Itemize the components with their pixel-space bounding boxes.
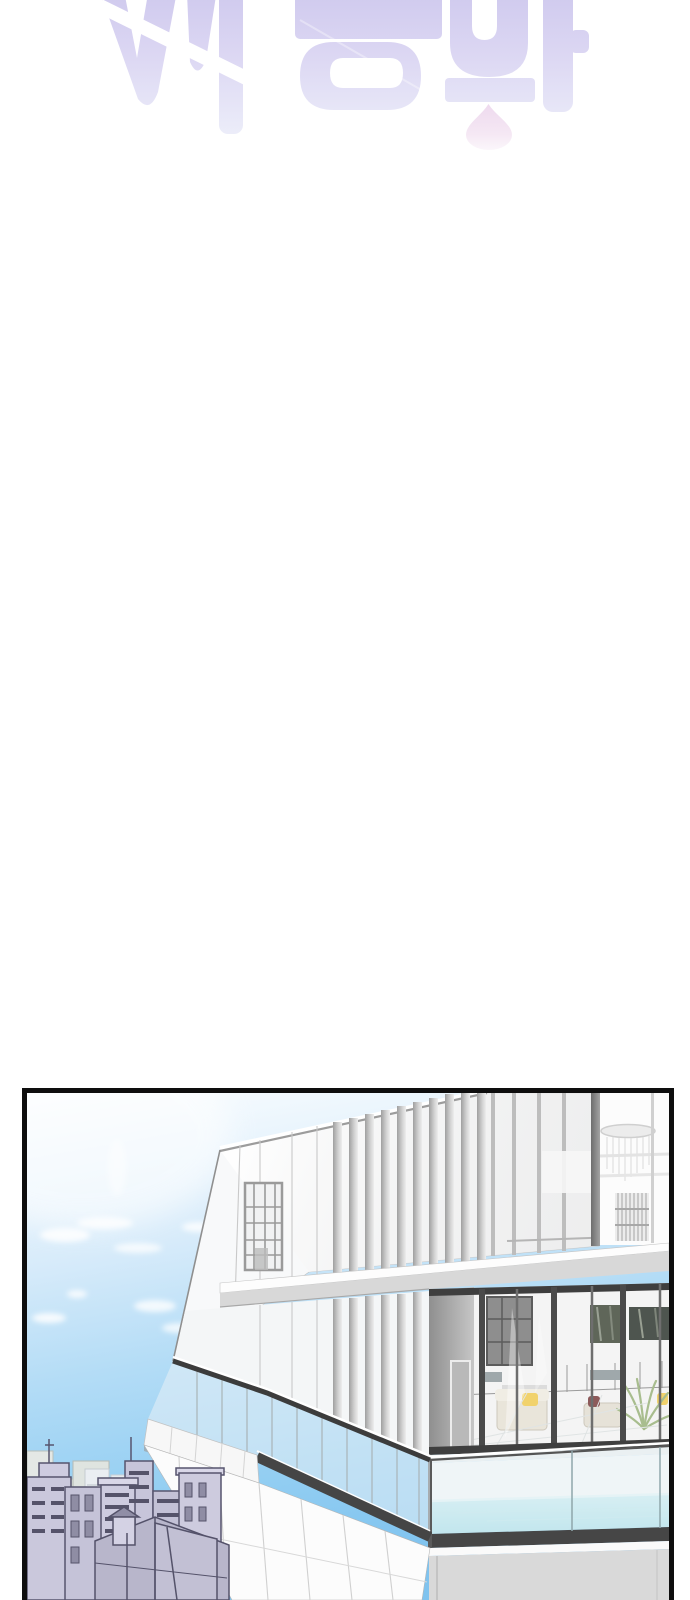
grid-window — [245, 1183, 282, 1270]
shelf-unit — [615, 1193, 649, 1241]
logo-glyph-vowel — [543, 0, 589, 112]
comic-panel — [22, 1088, 674, 1600]
webtoon-page: { "meta": { "canvas_width": 690, "canvas… — [0, 0, 690, 1600]
title-logo — [0, 0, 690, 175]
cushion-yellow — [522, 1393, 538, 1406]
corner-wall — [429, 1287, 474, 1455]
corner-mullion — [591, 1093, 600, 1246]
logo-glyph-ring-right — [445, 0, 535, 102]
droplet-icon — [466, 104, 512, 150]
penthouse-building — [144, 1093, 669, 1600]
pool-terrace — [429, 1443, 669, 1600]
logo-glyph-ring-left — [295, 0, 442, 110]
wall-art — [590, 1305, 669, 1343]
panel-scene — [27, 1093, 669, 1600]
lower-wall — [429, 1549, 669, 1600]
glass-doors — [429, 1283, 669, 1455]
